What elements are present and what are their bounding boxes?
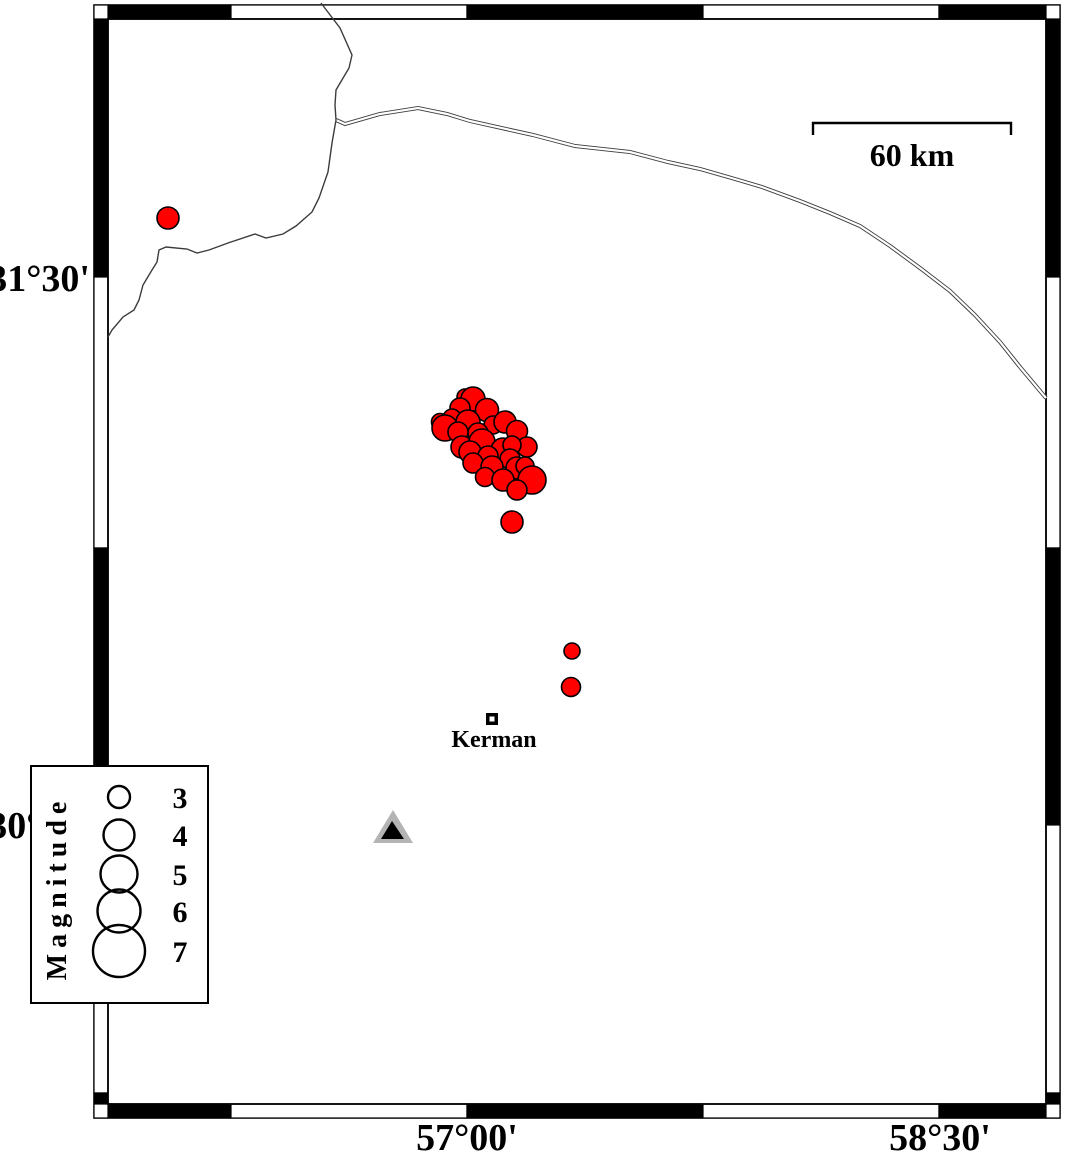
- legend-title: Magnitude: [42, 796, 73, 981]
- frame-segment-bottom: [108, 1104, 231, 1118]
- legend-magnitude-value: 3: [173, 782, 188, 815]
- earthquake-marker: [562, 678, 581, 697]
- axis-labels: 31°30'30°00'57°00'58°30': [0, 258, 991, 1154]
- frame-segment-right: [1046, 548, 1060, 825]
- frame-segment-left: [94, 1093, 108, 1104]
- scale-bar-bracket: [813, 123, 1011, 135]
- legend-magnitude-value: 6: [173, 896, 188, 929]
- frame-corner-square: [94, 5, 108, 19]
- city-kerman: Kerman: [451, 713, 536, 753]
- frame-segment-bottom: [231, 1104, 467, 1118]
- earthquake-marker: [564, 643, 580, 659]
- legend-magnitude-value: 5: [173, 859, 188, 892]
- frame-segment-left: [94, 19, 108, 277]
- frame-segment-top: [108, 5, 231, 19]
- frame-segment-right: [1046, 1093, 1060, 1104]
- frame-segment-top: [939, 5, 1046, 19]
- station-marker: [373, 810, 413, 843]
- frame-segment-bottom: [703, 1104, 939, 1118]
- axis-tick-label: 58°30': [889, 1117, 991, 1154]
- scale-bar-label: 60 km: [870, 137, 955, 173]
- frame-corner-square: [1046, 5, 1060, 19]
- frame-segment-top: [703, 5, 939, 19]
- roads-layer: [108, 3, 1046, 398]
- seismicity-map: Kerman 60 km 31°30'30°00'57°00'58°30' Ma…: [0, 0, 1066, 1154]
- road-line: [108, 3, 352, 337]
- frame-segment-right: [1046, 277, 1060, 548]
- city-label: Kerman: [451, 727, 536, 753]
- legend-magnitude-value: 7: [173, 936, 188, 969]
- earthquake-marker: [507, 480, 527, 500]
- axis-tick-label: 31°30': [0, 258, 90, 300]
- city-square-marker-inner: [490, 717, 495, 722]
- magnitude-legend: Magnitude 34567: [31, 766, 208, 1003]
- earthquake-marker: [157, 207, 179, 229]
- frame-segment-left: [94, 277, 108, 548]
- frame-segment-right: [1046, 825, 1060, 1093]
- earthquake-markers-layer: [157, 207, 581, 697]
- frame-segment-bottom: [939, 1104, 1046, 1118]
- frame-corner-square: [1046, 1104, 1060, 1118]
- axis-tick-label: 57°00': [416, 1117, 518, 1154]
- frame-segment-top: [231, 5, 467, 19]
- earthquake-marker: [501, 511, 523, 533]
- frame-segment-top: [467, 5, 703, 19]
- frame-inner-line: [108, 19, 1046, 1104]
- figure-canvas: Kerman 60 km 31°30'30°00'57°00'58°30' Ma…: [0, 0, 1066, 1154]
- frame-segment-right: [1046, 19, 1060, 277]
- frame-corner-square: [94, 1104, 108, 1118]
- scale-bar: 60 km: [813, 123, 1011, 173]
- legend-magnitude-value: 4: [173, 820, 188, 853]
- frame-segment-bottom: [467, 1104, 703, 1118]
